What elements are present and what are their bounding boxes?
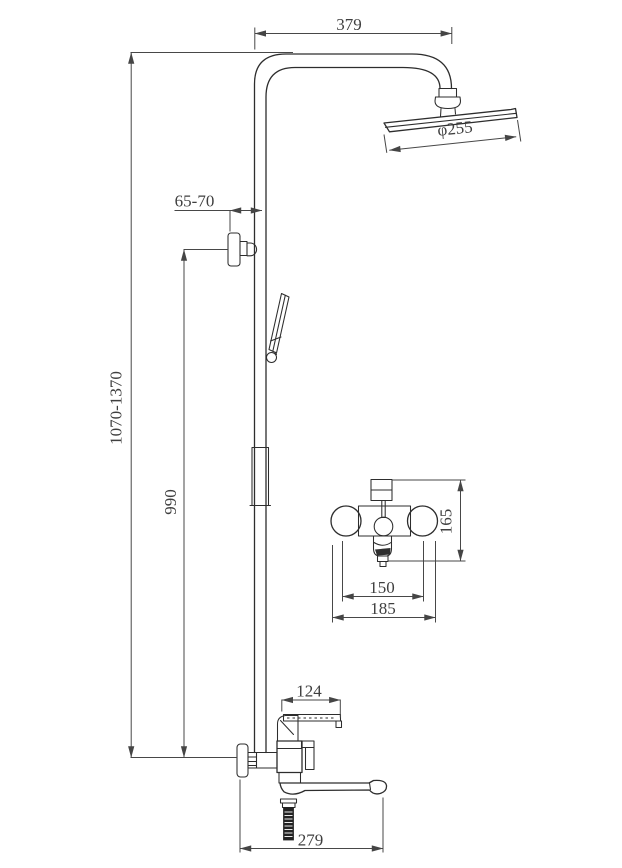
- dim-label-mixer-height: 165: [437, 509, 456, 535]
- handle-base-detail: [281, 721, 294, 735]
- valve-body: [277, 741, 302, 773]
- drain-hex-nut-bottom: [283, 803, 296, 808]
- mixer-left-escutcheon: [331, 506, 361, 536]
- dim-overall-height-references: [131, 53, 294, 758]
- diverter-knob: [302, 741, 315, 770]
- dim-riser-height: 990: [161, 250, 228, 758]
- mixer-lower-body-curve: [374, 543, 391, 546]
- dim-label-riser-height: 990: [161, 489, 180, 515]
- handle-lever-end-tab: [336, 721, 342, 728]
- dim-label-handle-length: 124: [296, 682, 322, 701]
- drain-hex-nut-top: [281, 799, 297, 803]
- dim-overall-height: 1070-1370: [107, 53, 294, 758]
- lower-wall-flange: [237, 744, 248, 777]
- dim-mixer-height: 165: [388, 480, 466, 561]
- inlet-nipple-threads: [248, 757, 257, 766]
- mixer-handle-knob: [374, 517, 393, 536]
- mixer-outlet-tip: [380, 562, 386, 567]
- dim-label-head-diameter: φ255: [436, 117, 473, 140]
- arm-connector-nut: [439, 89, 457, 98]
- dim-label-wall-offset: 65-70: [175, 192, 215, 211]
- inlet-tube: [257, 753, 278, 769]
- hand-shower-hook: [267, 353, 277, 363]
- dim-wall-offset-leader: [175, 211, 231, 232]
- bracket-flange: [228, 233, 240, 266]
- pipe-inner-line: [266, 68, 440, 753]
- mixer-outlet: [378, 556, 389, 562]
- dim-head-diameter: φ255: [384, 117, 521, 153]
- dimension-annotations: 379 φ255 65-70 1070-1370 990: [107, 15, 521, 853]
- mixer-right-escutcheon: [408, 506, 438, 536]
- hand-shower: [267, 294, 290, 363]
- dim-label-arm-reach: 379: [336, 15, 362, 34]
- pipe-outer-line: [255, 54, 452, 753]
- bracket-clamp-cap: [247, 243, 257, 256]
- ball-joint: [435, 97, 461, 109]
- mixer-body-block: [359, 506, 411, 536]
- shower-column-figure: [228, 54, 517, 840]
- dim-wall-offset: 65-70: [175, 192, 263, 232]
- mixer-handle-stem: [382, 501, 385, 518]
- mixer-detail-view: [331, 480, 438, 567]
- pipe-slide-joint: [250, 448, 271, 506]
- spout-neck: [279, 773, 301, 784]
- riser-pipe-and-shower-arm: [250, 54, 452, 753]
- dim-label-overall-height: 1070-1370: [107, 371, 126, 445]
- shower-column-technical-drawing: 379 φ255 65-70 1070-1370 990: [0, 0, 622, 868]
- spout-tip-line: [370, 783, 371, 790]
- dim-handle-length: 124: [282, 682, 341, 718]
- drawing-canvas: 379 φ255 65-70 1070-1370 990: [0, 0, 622, 868]
- upper-wall-bracket: [228, 233, 257, 266]
- dim-label-mixer-hole-spacing: 150: [369, 578, 395, 597]
- bracket-body: [240, 242, 247, 256]
- bath-mixer-assembly: [237, 715, 387, 841]
- dim-head-diameter-line: [389, 137, 516, 151]
- mixer-shadow-band: [375, 548, 391, 556]
- dim-label-spout-reach: 279: [298, 831, 324, 850]
- dim-label-mixer-body-width: 185: [370, 599, 396, 618]
- dim-arm-reach: 379: [255, 15, 452, 50]
